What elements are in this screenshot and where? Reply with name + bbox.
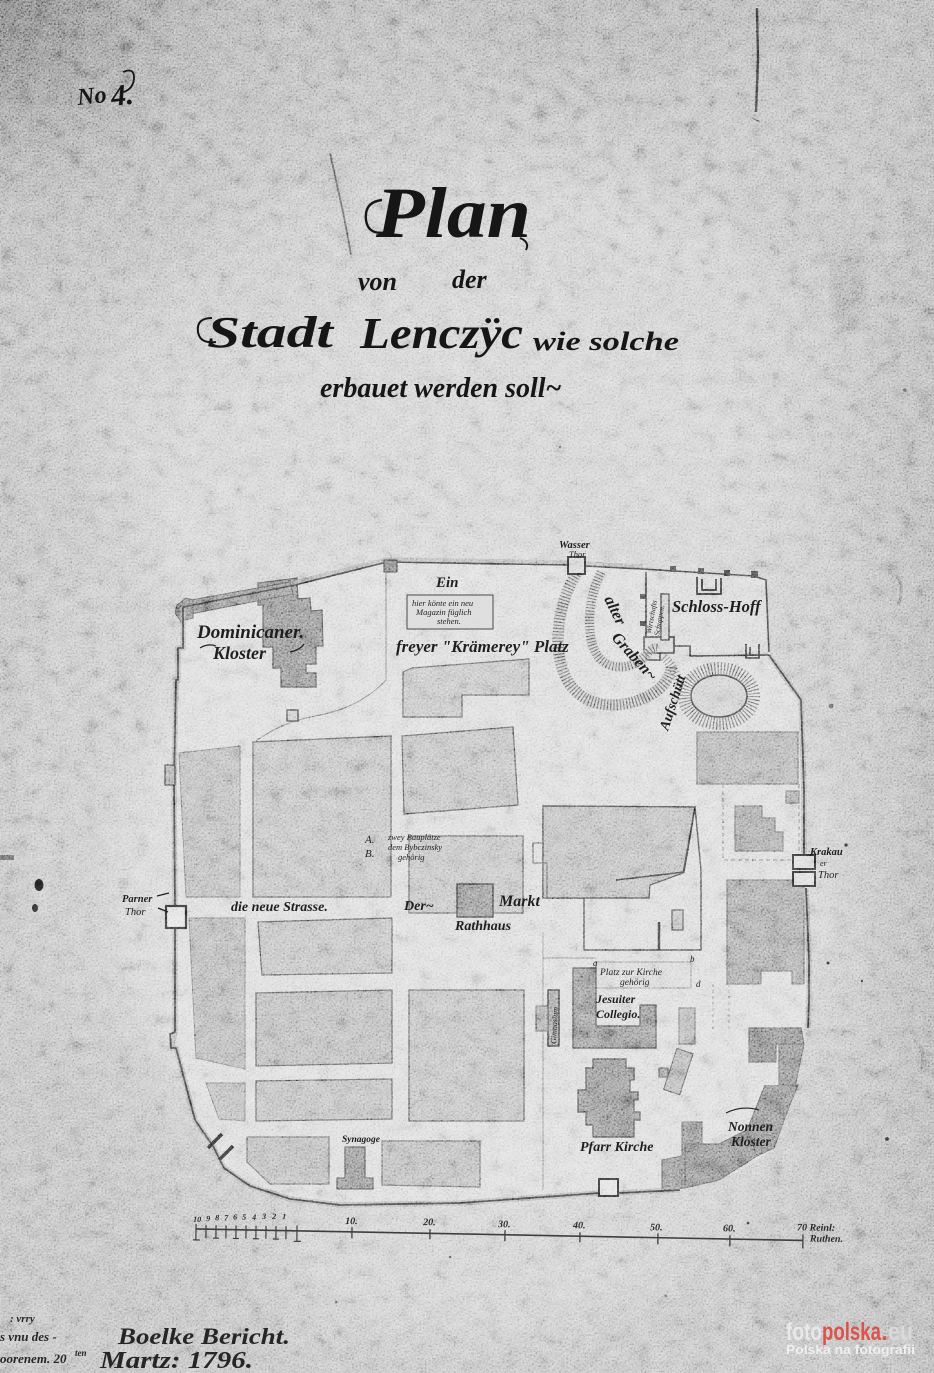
svg-text:Stadt: Stadt: [207, 308, 335, 357]
svg-text:60.: 60.: [723, 1223, 736, 1234]
svg-text:.: .: [881, 1318, 888, 1346]
svg-text:1: 1: [282, 1212, 286, 1221]
svg-text:A.: A.: [364, 834, 374, 846]
svg-text:8: 8: [215, 1213, 219, 1222]
svg-text:Thor: Thor: [125, 907, 146, 918]
svg-text:polska: polska: [822, 1318, 882, 1346]
svg-text:2: 2: [271, 1212, 276, 1221]
svg-text:Rathhaus: Rathhaus: [454, 919, 512, 934]
svg-text:Ruthen.: Ruthen.: [809, 1234, 843, 1245]
svg-text:stehen.: stehen.: [437, 616, 461, 626]
svg-text:30.: 30.: [497, 1219, 511, 1230]
svg-text:eu: eu: [888, 1318, 913, 1346]
svg-text:Der~: Der~: [403, 899, 434, 914]
svg-text:Dominicaner.: Dominicaner.: [196, 622, 304, 643]
svg-text:a: a: [593, 958, 598, 968]
svg-text:Synagoge: Synagoge: [342, 1135, 381, 1145]
svg-text:Martz: 1796.: Martz: 1796.: [99, 1348, 253, 1373]
svg-text:Platz zur Kirche: Platz zur Kirche: [599, 968, 662, 978]
svg-text:die neue Strasse.: die neue Strasse.: [231, 900, 328, 915]
svg-text:Pfarr Kirche: Pfarr Kirche: [580, 1140, 654, 1155]
svg-text:9: 9: [206, 1214, 210, 1223]
svg-text:6: 6: [233, 1212, 237, 1221]
svg-text:Boelke Bericht.: Boelke Bericht.: [117, 1324, 290, 1349]
svg-text:zwey Bauplätze: zwey Bauplätze: [387, 832, 441, 842]
svg-text:Nonnen: Nonnen: [727, 1119, 773, 1134]
svg-text:wie solche: wie solche: [533, 327, 679, 356]
svg-text:s vnu des -: s vnu des -: [0, 1329, 57, 1344]
svg-text:5: 5: [242, 1213, 246, 1222]
svg-text:3: 3: [261, 1212, 266, 1221]
svg-text:Plan: Plan: [375, 173, 531, 253]
svg-text:Ein: Ein: [435, 575, 459, 591]
svg-text:4.: 4.: [108, 78, 135, 113]
svg-text:Krakau: Krakau: [809, 847, 843, 858]
svg-text:oorenem. 20: oorenem. 20: [0, 1351, 67, 1366]
svg-text:Kloster: Kloster: [730, 1134, 772, 1149]
svg-text:40.: 40.: [572, 1220, 586, 1231]
svg-text:Jesuiter: Jesuiter: [595, 992, 636, 1006]
svg-text:No: No: [75, 82, 108, 111]
svg-text:10.: 10.: [345, 1216, 358, 1227]
svg-text:70 Reinl:: 70 Reinl:: [797, 1222, 835, 1234]
svg-text:d: d: [696, 979, 701, 989]
svg-text:ten: ten: [75, 1348, 87, 1358]
svg-text:Collegio.: Collegio.: [596, 1007, 640, 1021]
svg-text:von: von: [358, 267, 397, 296]
svg-text:Thor: Thor: [818, 870, 839, 881]
svg-text:erbauet werden soll~: erbauet werden soll~: [320, 373, 562, 404]
svg-text:Lenczÿc: Lenczÿc: [359, 309, 523, 358]
svg-text:10: 10: [193, 1215, 201, 1224]
svg-text:50.: 50.: [650, 1222, 663, 1233]
svg-text:Thor: Thor: [569, 549, 586, 559]
svg-text:der: der: [452, 265, 488, 294]
svg-text:Kloster: Kloster: [212, 643, 267, 663]
svg-text:foto: foto: [786, 1318, 822, 1346]
svg-text:B.: B.: [365, 848, 374, 860]
svg-text:Parner: Parner: [122, 894, 153, 905]
svg-text:gehörig: gehörig: [620, 978, 650, 988]
svg-text:20.: 20.: [422, 1217, 436, 1228]
svg-text:gehörig: gehörig: [398, 852, 424, 862]
svg-text:Markt: Markt: [498, 893, 540, 910]
svg-text:er: er: [820, 859, 828, 868]
svg-text:freyer "Krämerey" Platz: freyer "Krämerey" Platz: [396, 637, 569, 656]
svg-text:: vrry: : vrry: [10, 1313, 35, 1325]
svg-text:4: 4: [251, 1213, 256, 1222]
svg-text:Polska na fotografii: Polska na fotografii: [786, 1343, 915, 1357]
svg-text:dem Bybczinsky: dem Bybczinsky: [388, 842, 442, 852]
svg-text:b: b: [690, 954, 695, 964]
svg-text:Schloss-Hoff: Schloss-Hoff: [672, 597, 762, 616]
